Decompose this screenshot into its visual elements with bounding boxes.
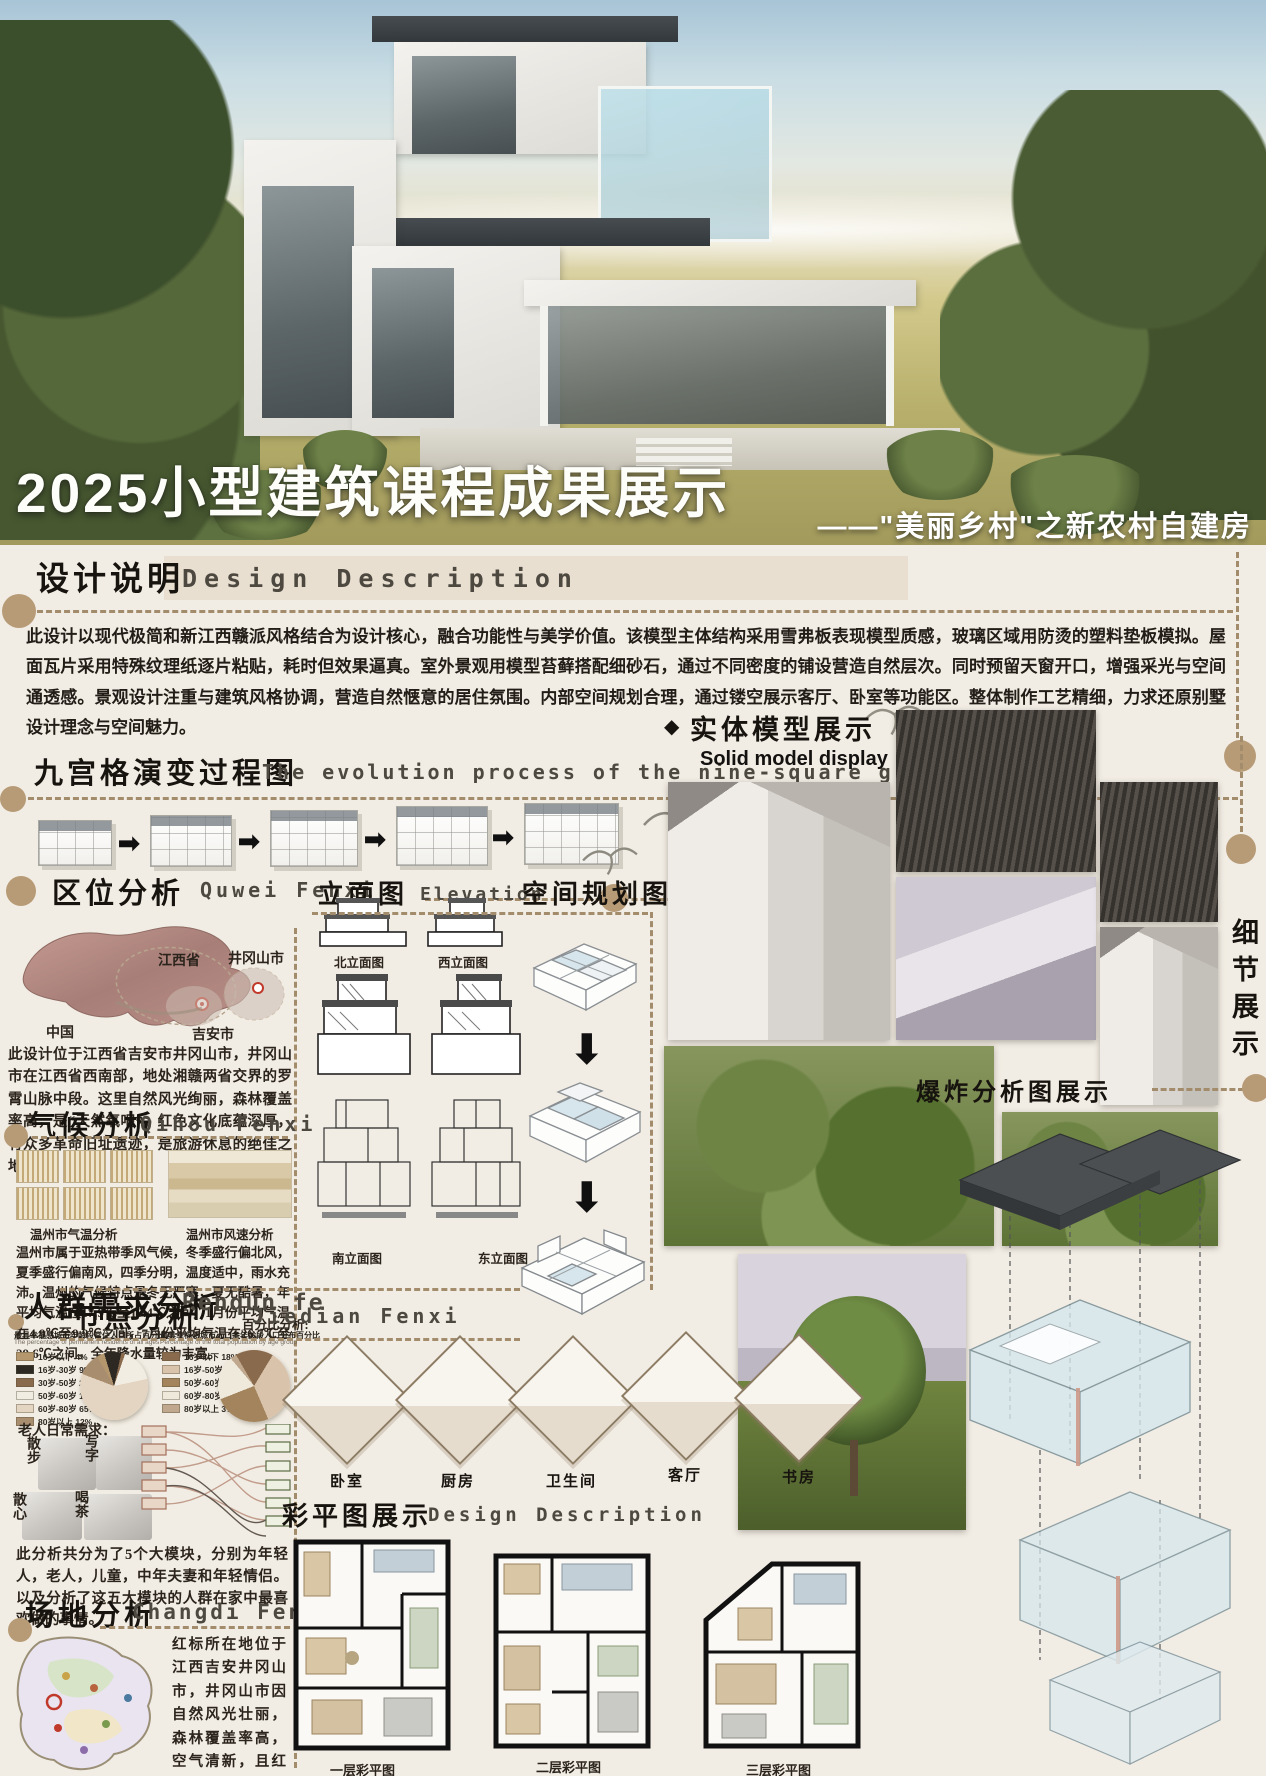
pavilion-column-left	[540, 306, 548, 426]
explode-heading-zh: 爆炸分析图展示	[916, 1072, 1112, 1107]
plan-label-level2: 二层彩平图	[536, 1757, 601, 1776]
site-body: 红标所在地位于江西吉安井冈山市，井冈山市因自然风光壮丽，森林覆盖率高，空气清新，…	[172, 1634, 286, 1776]
legend-swatch	[16, 1378, 34, 1387]
legend-swatch	[16, 1404, 34, 1413]
divider-dot	[1242, 1074, 1266, 1102]
house-top-roof	[372, 16, 678, 42]
design-heading-zh: 设计说明	[36, 552, 184, 600]
floorplan-level1	[292, 1538, 452, 1752]
section-dot	[6, 876, 36, 906]
decor-vdash	[1236, 552, 1239, 738]
elevation-south-drawing	[316, 972, 412, 1240]
wind-chart	[168, 1150, 292, 1218]
divider	[60, 1288, 520, 1291]
divider	[1152, 1088, 1244, 1091]
divider	[100, 1626, 290, 1629]
legend-swatch	[162, 1378, 180, 1387]
arrow-right-icon: ➡	[118, 828, 140, 859]
arrow-right-icon: ➡	[364, 824, 386, 855]
temperature-chart	[16, 1150, 156, 1220]
arrow-down-icon: ⬇	[570, 1030, 604, 1070]
exploded-axon-diagram	[900, 1120, 1266, 1770]
room-label-bedroom: 卧室	[330, 1470, 364, 1491]
pie-chart-age-groups	[218, 1350, 290, 1422]
diamond-bullet-icon: ◆	[664, 714, 679, 739]
model-photo-roof	[896, 710, 1096, 872]
decor-vdash	[1240, 736, 1243, 832]
divider	[60, 1338, 520, 1341]
hero-rendering: 2025小型建筑课程成果展示 ——"美丽乡村"之新农村自建房	[0, 0, 1266, 545]
divider	[28, 610, 1233, 613]
pie-chart-residents	[80, 1352, 148, 1420]
arrow-down-icon: ⬇	[570, 1178, 604, 1218]
room-label-bathroom: 卫生间	[546, 1470, 597, 1491]
ninegrid-step-4	[396, 806, 488, 866]
node-room-kitchen	[395, 1335, 525, 1465]
map-label-jian: 吉安市	[192, 1024, 234, 1044]
legend-swatch	[162, 1352, 180, 1361]
bush	[880, 430, 1000, 500]
room-label-livingroom: 客厅	[668, 1464, 702, 1485]
plan-label-level1: 一层彩平图	[330, 1760, 395, 1776]
model-heading-zh: 实体模型展示	[690, 708, 876, 747]
model-photo-front	[668, 782, 890, 1040]
detail-photo-window	[1100, 927, 1218, 1105]
legend-swatch	[162, 1404, 180, 1413]
decor-dot	[1226, 834, 1256, 864]
map-label-jiangxi: 江西省	[158, 950, 200, 970]
divider	[32, 1136, 288, 1139]
activity-label: 散步	[22, 1436, 42, 1464]
house-pavilion-roof	[524, 280, 916, 306]
arrow-right-icon: ➡	[238, 826, 260, 857]
room-label-kitchen: 厨房	[441, 1470, 475, 1491]
detail-photo-roof	[1100, 782, 1218, 922]
plans-heading-zh: 彩平图展示	[282, 1496, 432, 1533]
house-center-window	[372, 268, 454, 418]
divider	[312, 912, 648, 915]
elevation-label-south: 南立面图	[332, 1248, 382, 1267]
ninegrid-heading-zh: 九宫格演变过程图	[34, 750, 298, 792]
node-room-livingroom	[621, 1331, 751, 1461]
map-label-china: 中国	[46, 1022, 74, 1042]
legend-swatch	[16, 1352, 34, 1361]
poster-root: 2025小型建筑课程成果展示 ——"美丽乡村"之新农村自建房 设计说明 Desi…	[0, 0, 1266, 1776]
poster-title: 2025小型建筑课程成果展示	[16, 448, 730, 528]
wind-chart-caption: 温州市风速分析	[186, 1224, 274, 1243]
ninegrid-step-1	[38, 820, 112, 866]
section-dot	[4, 1124, 28, 1148]
arrow-right-icon: ➡	[492, 822, 514, 853]
elevation-label-west: 西立面图	[438, 952, 488, 971]
elevation-east-drawing	[428, 972, 524, 1240]
plan-label-level3: 三层彩平图	[746, 1760, 811, 1776]
model-heading-en: Solid model display	[700, 748, 888, 771]
floorplan-level3	[702, 1560, 862, 1750]
legend-swatch	[16, 1391, 34, 1400]
model-photo-interior	[896, 877, 1096, 1040]
floorplan-level2	[492, 1552, 652, 1750]
node-room-bedroom	[282, 1335, 412, 1465]
ninegrid-step-3	[270, 810, 358, 867]
space-axon-2	[514, 1072, 656, 1172]
map-label-jinggangshan: 井冈山市	[228, 948, 284, 968]
nodes-heading-zh: 节点分析	[72, 1296, 200, 1336]
site-map	[10, 1632, 162, 1776]
poster-subtitle: ——"美丽乡村"之新农村自建房	[818, 503, 1253, 545]
legend-item: 16岁以下 4%	[38, 1351, 88, 1363]
house-pavilion-glass	[540, 306, 892, 424]
elevation-north-drawing	[318, 896, 410, 950]
section-dot	[8, 1314, 24, 1330]
room-label-study: 书房	[782, 1466, 816, 1487]
activity-label: 散心	[8, 1492, 28, 1520]
legend-swatch	[162, 1391, 180, 1400]
space-axon-3	[508, 1218, 658, 1326]
node-room-bathroom	[508, 1335, 638, 1465]
nodes-heading-en: Jiedian Fenxi	[252, 1304, 461, 1328]
needs-flow-diagram	[140, 1424, 292, 1542]
house-top-window	[412, 56, 516, 154]
plans-heading-en: Design Description	[428, 1504, 706, 1526]
pavilion-column-right	[886, 306, 894, 426]
legend-swatch	[16, 1365, 34, 1374]
house-left-window	[262, 186, 354, 418]
elevation-label-north: 北立面图	[334, 952, 384, 971]
legend-swatch	[162, 1365, 180, 1374]
elevation-west-drawing	[424, 896, 506, 950]
ninegrid-step-2	[150, 815, 232, 867]
activity-label: 喝茶	[70, 1490, 90, 1518]
tree-trunk	[850, 1440, 858, 1496]
design-heading-en: Design Description	[182, 564, 579, 593]
climate-heading-en: Qihou Fenxi	[140, 1112, 316, 1136]
space-axon-1	[514, 928, 656, 1024]
activity-label: 写字	[80, 1434, 100, 1462]
detail-heading-zh: 细节展示	[1224, 918, 1263, 1066]
location-heading-zh: 区位分析	[52, 870, 184, 912]
spaceplan-heading-zh: 空间规划图	[522, 874, 672, 911]
temperature-chart-caption: 温州市气温分析	[30, 1224, 118, 1243]
divider-dot	[0, 786, 26, 812]
